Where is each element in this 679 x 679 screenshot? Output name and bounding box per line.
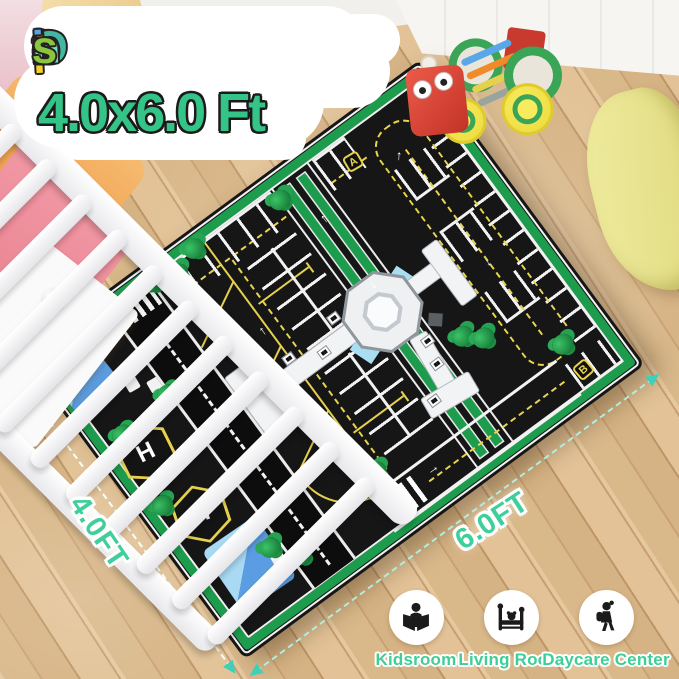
size-dimensions-title: 4.0x6.0 Ft: [38, 82, 264, 144]
usage-label: Daycare Center: [541, 650, 671, 670]
road-arrow: ↑: [427, 463, 441, 476]
usage-icon-circle: [484, 590, 539, 645]
road-arrow: ↑: [482, 256, 495, 270]
product-photo-scene: H H: [0, 0, 679, 679]
road-arrow: ↑: [419, 171, 432, 185]
road-arrow: ↑: [256, 323, 269, 337]
road-arrow: ↑: [367, 279, 380, 293]
usage-icon-circle: [579, 590, 634, 645]
wooden-toy-train: [398, 4, 563, 151]
child-with-backpack-icon: [588, 600, 624, 636]
child-reading-icon: [398, 600, 434, 636]
road-arrow: ↑: [395, 148, 402, 161]
usage-daycare-center: Daycare Center: [541, 590, 671, 670]
toddler-bed-icon: [493, 600, 529, 636]
usage-icon-circle: [389, 590, 444, 645]
road-arrow: ↑: [317, 211, 330, 225]
